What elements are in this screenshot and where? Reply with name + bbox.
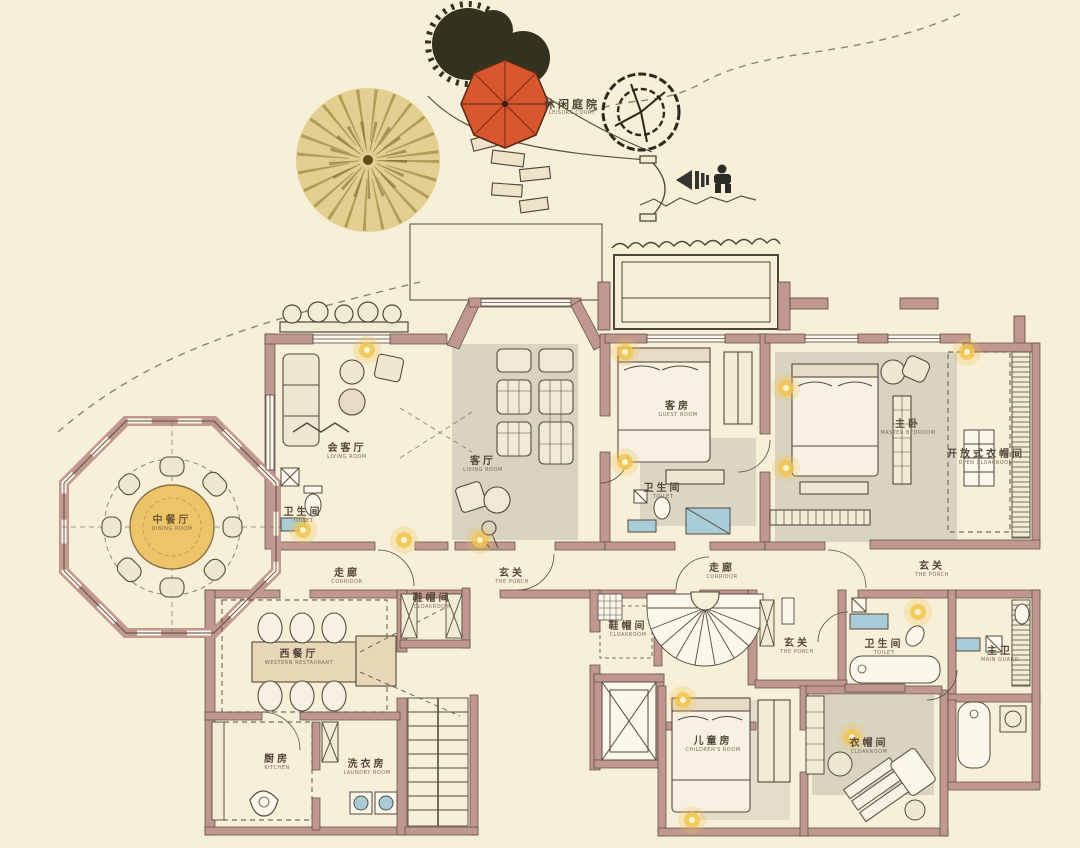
cloak2-fixtures bbox=[598, 594, 652, 658]
reception-furniture bbox=[283, 354, 404, 446]
floor-plan-drawing bbox=[0, 0, 1080, 848]
person-icon bbox=[714, 165, 731, 194]
entry-door bbox=[640, 156, 665, 221]
tree-scribble bbox=[603, 74, 679, 150]
stairs-spiral bbox=[647, 592, 763, 666]
umbrella-icon bbox=[461, 60, 549, 148]
western-restaurant-set bbox=[222, 600, 460, 716]
open-cloak-furniture bbox=[948, 352, 1010, 532]
entrance-arrow-icon bbox=[676, 170, 709, 190]
floor-plan-canvas: 休闲庭院LEISURE COURT中餐厅DINING ROOM会客厅LIVING… bbox=[0, 0, 1080, 848]
elevator bbox=[602, 682, 656, 760]
kitchen-fixtures bbox=[212, 722, 312, 820]
terrace-shrubs bbox=[280, 302, 408, 332]
laundry-fixtures bbox=[322, 722, 397, 814]
hedge-line bbox=[612, 239, 780, 248]
tree-yellow bbox=[296, 88, 440, 232]
stairs-straight bbox=[408, 698, 468, 826]
cloak1-hatch bbox=[401, 594, 462, 638]
hatch-window-strips bbox=[1012, 352, 1030, 686]
porch-lower-console bbox=[760, 598, 794, 646]
